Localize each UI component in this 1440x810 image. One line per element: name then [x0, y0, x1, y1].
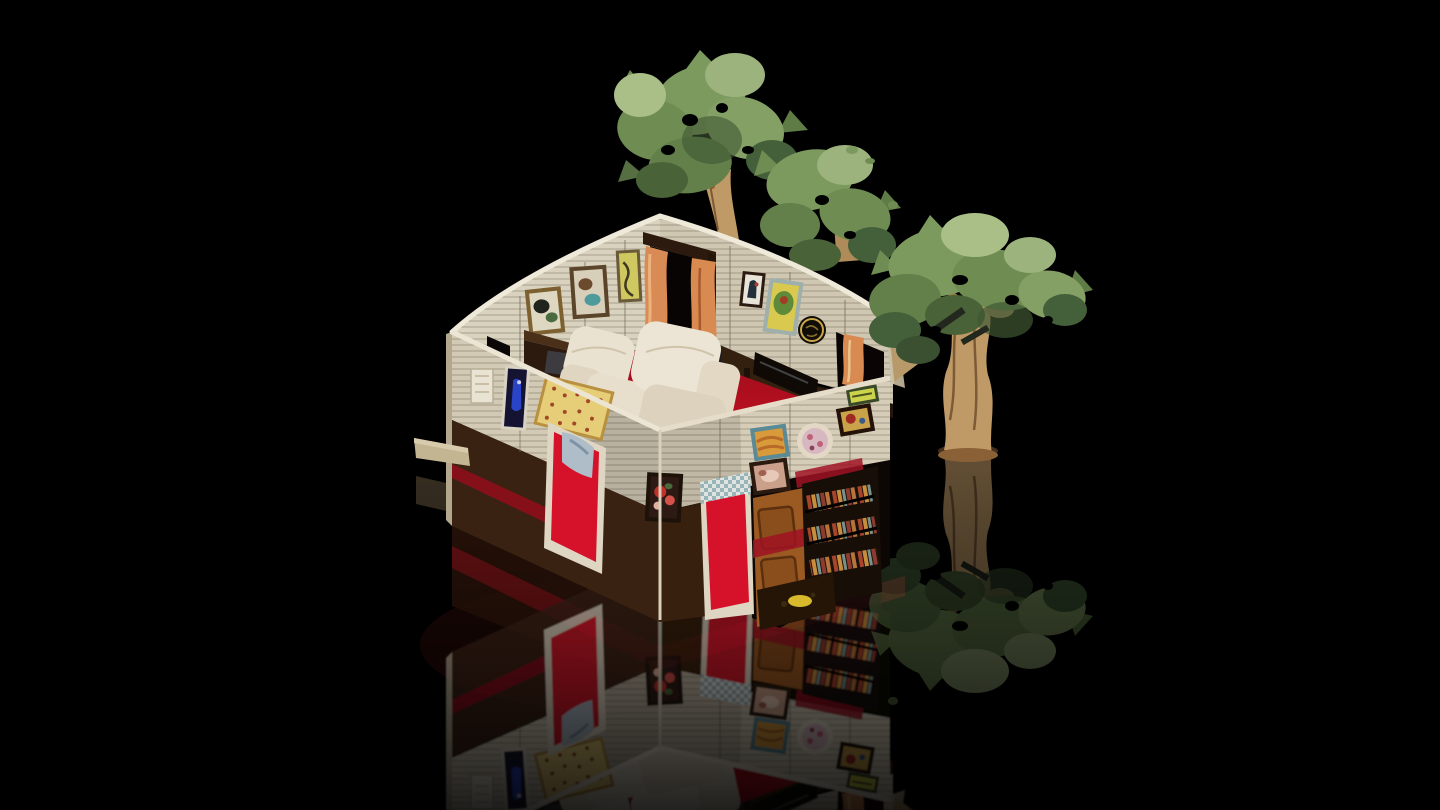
painting-blue-figure: [501, 365, 530, 431]
painting-abstract-1: [525, 286, 566, 336]
foliage-bit: [865, 158, 875, 164]
foliage-hole: [844, 231, 856, 239]
foliage-hole: [952, 275, 968, 285]
painting-canvas: [573, 269, 605, 315]
painting-abstract-3: [616, 249, 643, 302]
foliage: [705, 53, 765, 97]
painting-pink: [749, 458, 791, 496]
painting-landscape-yellow: [750, 424, 790, 462]
relief-plaque: [471, 369, 493, 403]
foliage: [614, 73, 666, 117]
foliage: [1004, 237, 1056, 273]
foliage-hole: [815, 195, 829, 205]
wall-medallion: [798, 316, 826, 344]
foliage-hole: [1043, 316, 1053, 324]
foliage: [636, 162, 688, 198]
painting-canvas: [649, 476, 679, 518]
foliage-hole: [929, 326, 941, 334]
wall-edge: [446, 332, 452, 526]
front-doorway-left: [544, 422, 606, 574]
curtain: [842, 334, 864, 388]
foliage: [977, 302, 1033, 338]
yellow-plate: [788, 595, 812, 607]
diorama-scene: [0, 0, 1440, 810]
foliage-bit: [888, 201, 898, 209]
shelf-object: [811, 593, 816, 598]
curtain-fold: [848, 340, 850, 382]
plate-detail: [810, 446, 815, 451]
painting-red-multi: [836, 403, 875, 437]
foliage-hole: [1005, 295, 1019, 305]
foliage-bit: [846, 146, 858, 154]
painting-abstract-2: [569, 265, 610, 319]
painting-portrait: [739, 271, 766, 308]
white-relief-frame: [471, 369, 493, 403]
curtain-fold: [649, 254, 650, 332]
foliage: [941, 213, 1009, 257]
foliage: [848, 227, 896, 263]
painting-canvas: [754, 428, 785, 457]
foliage-hole: [661, 145, 675, 155]
foliage-hole: [742, 146, 754, 154]
decorative-plate: [797, 423, 833, 459]
foliage: [817, 145, 873, 185]
foliage: [896, 336, 940, 364]
painting-roses: [645, 472, 684, 523]
foliage-hole: [716, 103, 728, 113]
shelf-object: [781, 601, 787, 607]
foliage-hole: [682, 114, 698, 126]
plate-face: [802, 428, 828, 454]
trunk-base: [938, 448, 998, 462]
diorama-photo: [0, 0, 1440, 810]
doorway-red-curtain: [706, 494, 749, 610]
plate-detail: [807, 434, 813, 440]
plate-detail: [817, 441, 823, 447]
medallion-disc: [798, 316, 826, 344]
front-doorway-right: [700, 472, 754, 620]
